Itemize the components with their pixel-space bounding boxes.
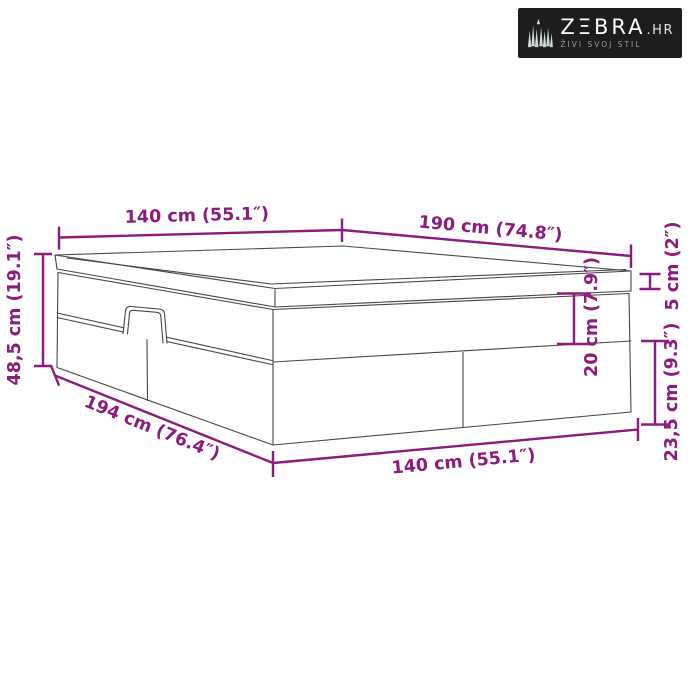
zebra-stripes-icon bbox=[527, 16, 553, 50]
product-dimension-page: 140 cm (55.1″) 190 cm (74.8″) 48,5 cm (1… bbox=[0, 0, 690, 690]
dim-mattress-thickness: 5 cm (2″) bbox=[640, 222, 684, 311]
zebra-logo: ZΞBRA.HR ŽIVI SVOJ STIL bbox=[518, 8, 682, 58]
dim-label-length: 190 cm (74.8″) bbox=[418, 213, 564, 246]
dim-label-mattress-thickness: 5 cm (2″) bbox=[663, 222, 683, 311]
dim-label-top-width: 140 cm (55.1″) bbox=[124, 204, 269, 228]
bed-dimension-diagram: 140 cm (55.1″) 190 cm (74.8″) 48,5 cm (1… bbox=[0, 0, 690, 690]
left-panel-divider bbox=[147, 338, 148, 401]
dim-label-total-height: 48,5 cm (19.1″) bbox=[5, 235, 25, 386]
dim-label-lower-section-height: 23,5 cm (9.3″) bbox=[662, 323, 682, 462]
logo-tagline: ŽIVI SVOJ STIL bbox=[560, 41, 674, 49]
dim-total-height: 48,5 cm (19.1″) bbox=[5, 235, 52, 386]
dim-top-width: 140 cm (55.1″) bbox=[59, 204, 342, 249]
dim-label-upper-section-height: 20 cm (7.9″) bbox=[582, 257, 602, 377]
logo-tld: .HR bbox=[647, 23, 674, 38]
logo-text-block: ZΞBRA.HR ŽIVI SVOJ STIL bbox=[560, 17, 674, 49]
logo-brand: ZΞBRA bbox=[560, 15, 645, 39]
dim-lower-section-height: 23,5 cm (9.3″) bbox=[641, 323, 682, 462]
logo-brand-row: ZΞBRA.HR bbox=[560, 17, 674, 38]
